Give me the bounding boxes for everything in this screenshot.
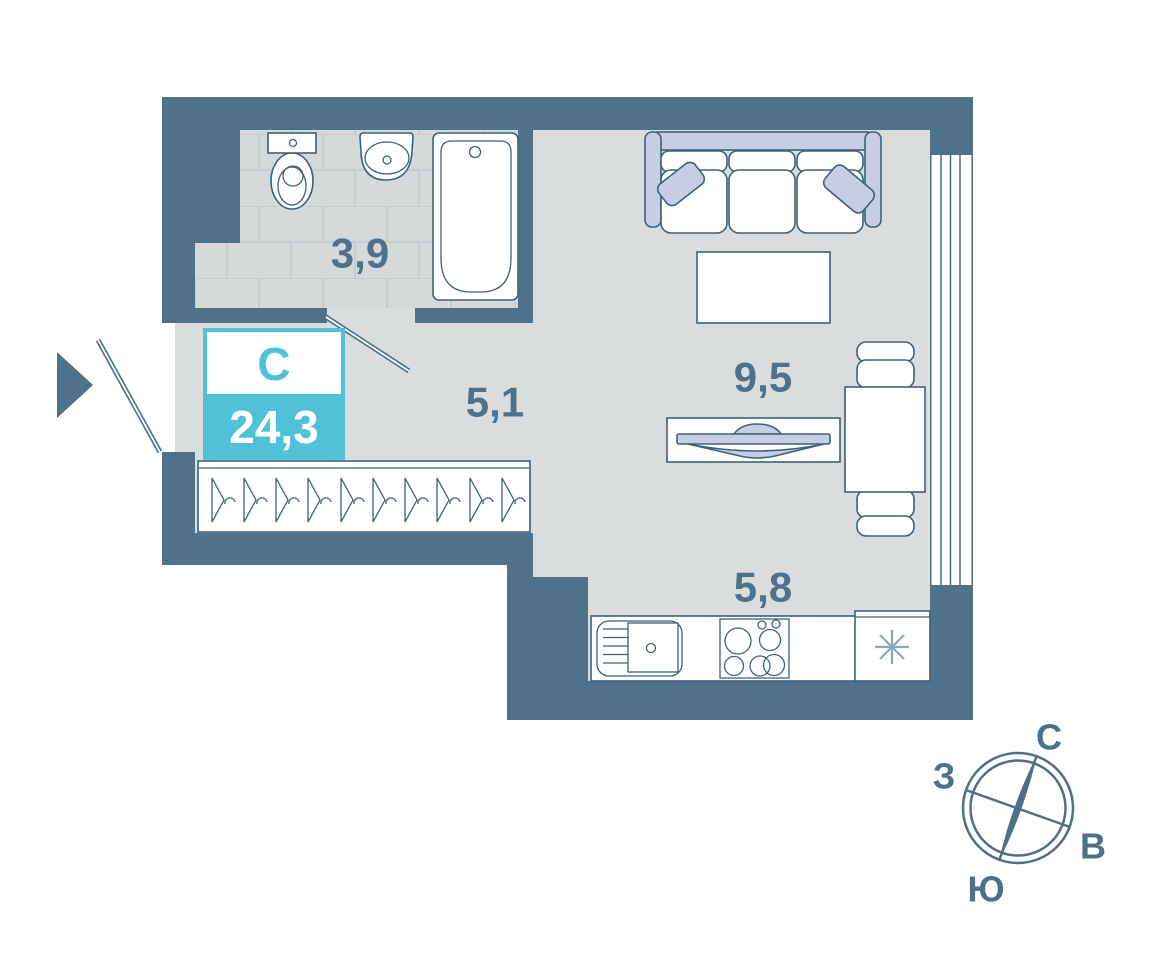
wall-bathroom-bottom-right (415, 308, 533, 323)
window-glass (930, 155, 973, 585)
compass-north-label: С (1036, 717, 1062, 758)
unit-total-area: 24,3 (229, 401, 319, 453)
entrance-arrow-icon (57, 352, 93, 418)
sofa-arm-right (865, 132, 881, 227)
tv-stand (667, 418, 840, 462)
bathtub (433, 133, 518, 300)
wall-right-bottom (930, 585, 973, 720)
floor-plan: С 24,3 (0, 0, 1163, 959)
unit-type-label: С (257, 338, 290, 390)
stove (720, 619, 789, 678)
hallway-area-label: 5,1 (466, 379, 524, 426)
sofa-back-cushion (729, 151, 795, 172)
sofa-arm-left (645, 132, 661, 227)
living-room-area-label: 9,5 (734, 354, 792, 401)
toilet (268, 133, 316, 209)
sofa-seat-cushion (729, 170, 795, 233)
compass-needle-icon (999, 755, 1037, 861)
fridge (855, 611, 930, 681)
chair (857, 342, 914, 388)
wall-bathroom-bottom-left (193, 308, 327, 323)
sofa-back-cushion (797, 151, 863, 172)
sofa (645, 132, 881, 233)
entrance-door-leaf-gap (98, 340, 160, 452)
coffee-table (697, 252, 830, 323)
unit-label-box: С 24,3 (205, 330, 343, 458)
entrance-door (98, 340, 160, 452)
toilet-tank (268, 133, 316, 153)
compass-west-label: З (933, 756, 956, 797)
compass: С В Ю З (933, 717, 1106, 910)
wall-bathroom-right (518, 130, 533, 323)
sofa-back (657, 132, 868, 150)
wardrobe (198, 461, 530, 532)
bathroom-area-label: 3,9 (331, 230, 389, 277)
compass-east-label: В (1080, 826, 1106, 867)
wall-bottom (507, 681, 973, 720)
dining-table (845, 387, 925, 492)
kitchen-counter (591, 611, 930, 681)
bathroom-sink (360, 133, 413, 180)
dining-set (845, 342, 925, 536)
window (930, 155, 973, 585)
compass-south-label: Ю (967, 869, 1004, 910)
wall-left-upper (162, 97, 195, 323)
floor-plan-page: С 24,3 (0, 0, 1163, 959)
wall-top (162, 97, 973, 130)
wall-bathroom-duct (195, 97, 240, 243)
wall-right-top-corner (930, 130, 973, 155)
snowflake-icon (875, 630, 909, 664)
toilet-bowl (271, 153, 313, 209)
wall-hall-bottom (162, 533, 533, 565)
kitchen-area-label: 5,8 (734, 564, 792, 611)
chair (857, 490, 914, 536)
